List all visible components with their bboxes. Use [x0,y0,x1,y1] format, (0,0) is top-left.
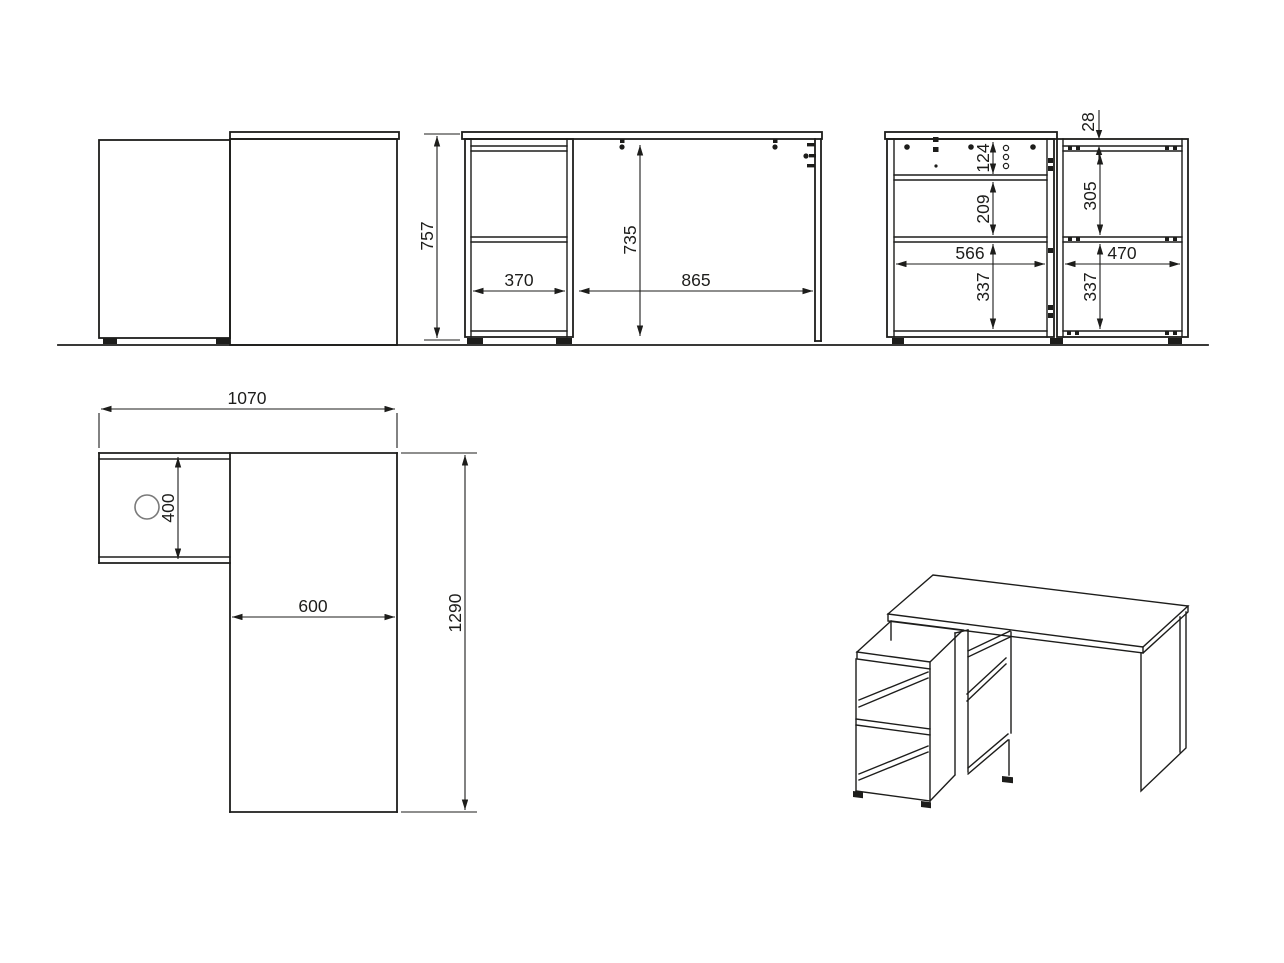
dim-label-865: 865 [681,270,710,290]
top-view-outline [99,453,397,812]
dimension-back-right-gap: 305 [1080,154,1100,235]
dimension-top-total-width: 1070 [99,388,397,448]
iso-desk-top [888,575,1188,653]
dimension-back-top-band: 124 [973,142,993,174]
top-view: 1070 400 600 1290 [99,388,477,812]
front-view-desk-top [462,132,822,139]
dimension-cabinet-width: 370 [473,270,565,291]
dimension-top-total-length: 1290 [401,453,477,812]
dim-label-757: 757 [417,221,437,250]
dim-label-124: 124 [973,143,993,172]
dimension-back-right-width: 470 [1065,243,1180,264]
dim-label-1070: 1070 [228,388,267,408]
front-view-cabinet [465,139,573,344]
dim-label-305: 305 [1080,181,1100,210]
isometric-view [853,575,1188,808]
drawing-canvas: 757 [0,0,1284,963]
dimension-back-left-width: 566 [896,243,1045,264]
dim-label-337-right: 337 [1080,272,1100,301]
iso-shelf-unit [853,621,1013,808]
dim-label-735: 735 [620,225,640,254]
front-view: 735 370 865 [462,132,822,344]
dim-label-1290: 1290 [445,593,465,632]
back-view-right-cabinet [1050,139,1188,344]
dim-label-566: 566 [955,243,984,263]
dimension-top-return-depth: 400 [158,457,178,559]
dimension-top-thickness: 28 [1078,110,1102,163]
side-view-cabinet-outline [99,140,230,344]
dimension-top-desk-width: 600 [232,596,395,617]
dimension-desk-span: 865 [579,270,813,291]
shelf-pin-marks [1067,146,1177,335]
technical-drawing: 757 [0,0,1284,963]
back-view-left-cabinet [887,139,1054,344]
back-view: 124 209 337 566 28 305 470 [885,110,1188,344]
dimension-back-right-lower: 337 [1080,244,1100,329]
dim-label-370: 370 [504,270,533,290]
dimension-clear-height: 735 [620,145,640,336]
front-view-fitting-pins [619,139,816,167]
iso-side-panel [1141,612,1186,791]
dim-label-337-left: 337 [973,272,993,301]
front-view-side-panel [815,139,821,341]
dim-label-28: 28 [1078,112,1098,131]
dim-label-209: 209 [973,194,993,223]
dim-label-600: 600 [298,596,327,616]
cable-grommet-hole [135,495,159,519]
dim-label-470: 470 [1107,243,1136,263]
dimension-back-shelf-gap: 209 [973,182,993,235]
back-view-desk-top [885,132,1057,139]
side-view-desk-panel-outline [230,132,399,345]
side-view [99,132,399,345]
dim-label-400: 400 [158,493,178,522]
dimension-overall-height: 757 [417,134,460,340]
